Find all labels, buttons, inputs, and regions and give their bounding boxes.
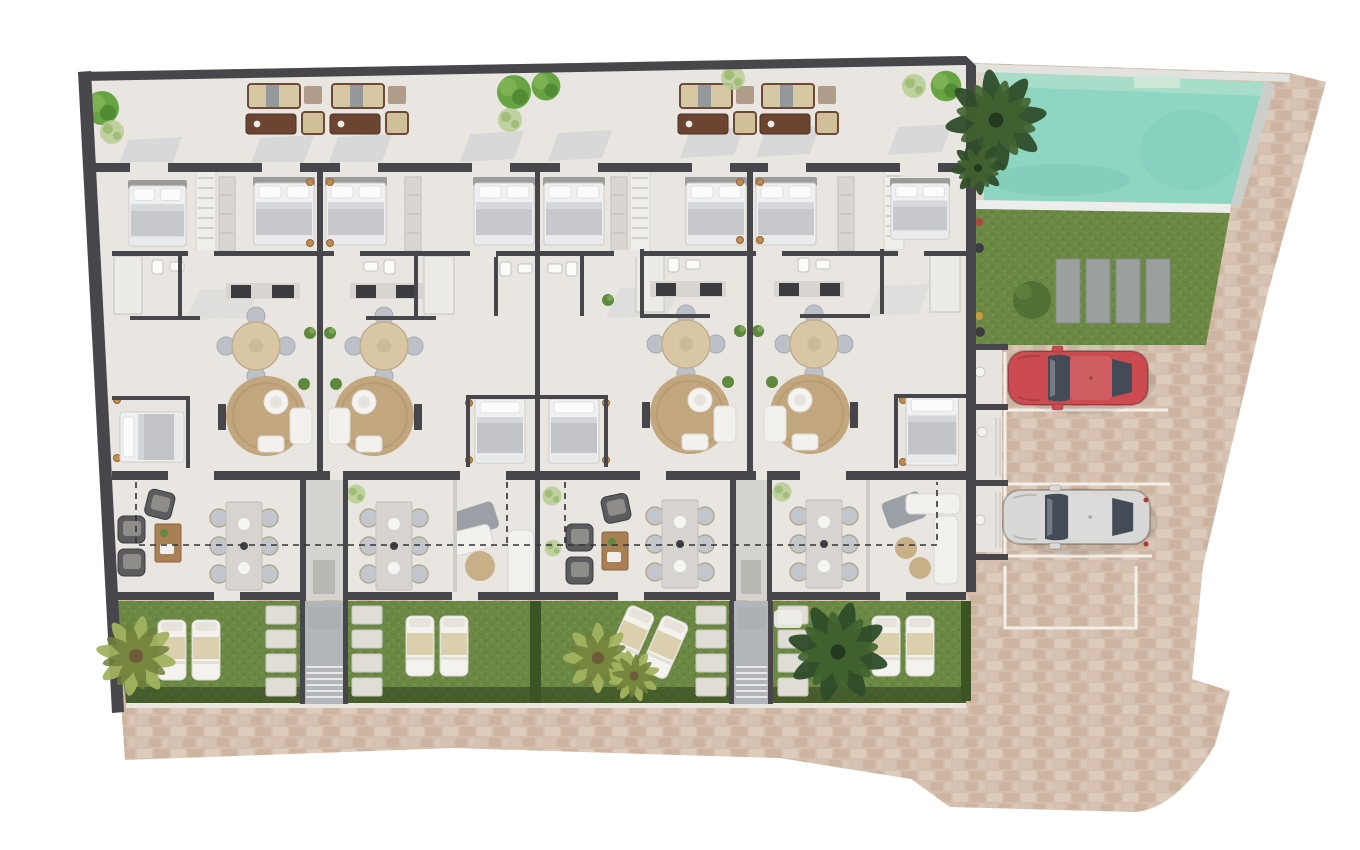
closet-c: [611, 177, 627, 251]
terrace-tree-b2: [532, 72, 561, 101]
stairs-c: [630, 168, 650, 252]
patio-bush-d: [772, 482, 791, 501]
armchair-c2: [566, 524, 593, 551]
patio-bush-b: [346, 484, 365, 503]
armchair-c3: [566, 557, 593, 584]
lounger-2a: [406, 616, 434, 676]
hedge-right: [961, 601, 971, 701]
armchair-c1: [600, 492, 632, 524]
patio-bush-c1: [542, 486, 561, 505]
terrace-tree-b1: [497, 75, 531, 109]
dining-table-d: [790, 500, 858, 588]
garden-curb: [126, 703, 966, 708]
bed-c2: [685, 177, 747, 245]
plant-4: [752, 325, 764, 337]
walkway-2: [733, 601, 770, 704]
armchair-a1: [143, 488, 176, 521]
plant-2: [324, 327, 336, 339]
bed-b1: [325, 177, 387, 245]
red-car: [1008, 346, 1148, 410]
plant-5: [602, 294, 614, 306]
bed-lower-d: [906, 396, 959, 465]
closet-b: [405, 177, 421, 251]
bed-lower-c: [549, 399, 599, 463]
coffee-table-a: [155, 524, 181, 562]
coffee-table-c: [602, 532, 628, 570]
walkway-1: [303, 601, 346, 704]
wall-terrace: [84, 163, 966, 172]
bed-end-left: [128, 180, 187, 246]
party-wall-2: [535, 163, 540, 600]
plant-1: [304, 327, 316, 339]
lounger-4b: [906, 616, 934, 676]
lounger-2b: [440, 616, 468, 676]
armchair-a2: [118, 516, 145, 543]
dining-table-c: [646, 500, 714, 588]
bed-b2: [473, 177, 535, 245]
terrace-bush-b: [498, 108, 522, 132]
bed-lower-a: [120, 412, 184, 462]
picnic-blanket: [774, 610, 802, 628]
dining-table-b: [360, 502, 428, 590]
closet-d: [838, 177, 854, 251]
bed-lower-b: [475, 399, 525, 463]
white-car: [1003, 485, 1150, 549]
armchair-a3: [118, 549, 145, 576]
bed-c1: [543, 177, 605, 245]
terrace-bush-a: [100, 120, 124, 144]
site-plan-svg: [0, 0, 1360, 850]
patio-bush-c2: [545, 540, 562, 557]
dining-table-a: [210, 502, 278, 590]
bed-d1: [755, 177, 817, 245]
terrace-bush-c: [721, 66, 745, 90]
stairs-a: [196, 168, 216, 252]
floor-plan-canvas: [0, 0, 1360, 850]
closet-a: [219, 177, 235, 251]
bed-a: [253, 177, 315, 245]
bed-end-right: [890, 178, 950, 239]
pool-step: [1134, 76, 1180, 88]
hedge-divider: [530, 601, 541, 703]
plant-3: [734, 325, 746, 337]
terrace-bush-d: [902, 74, 926, 98]
lounger-1b: [192, 620, 220, 680]
